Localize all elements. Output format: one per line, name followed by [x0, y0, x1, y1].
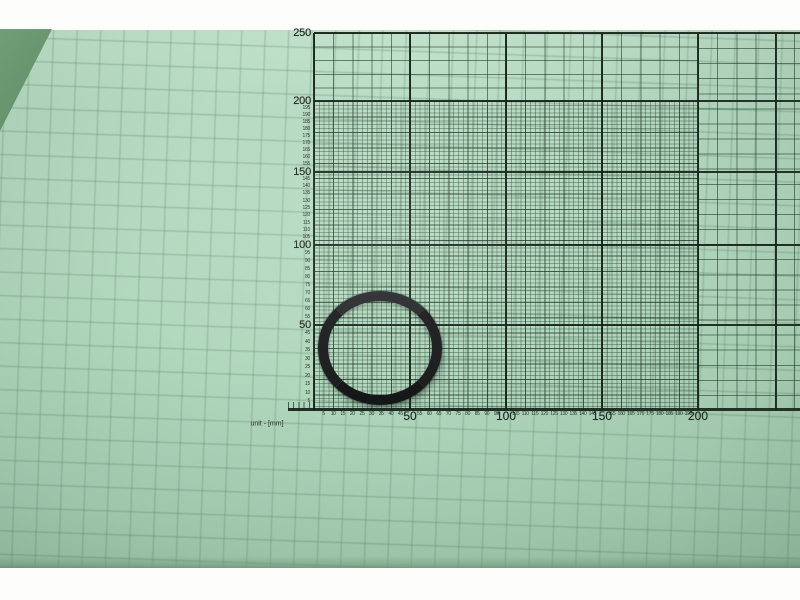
vignette-overlay [0, 30, 800, 568]
photo-o-ring-on-measuring-mat: unit - [mm] 2502001501005019519018518017… [0, 0, 800, 600]
